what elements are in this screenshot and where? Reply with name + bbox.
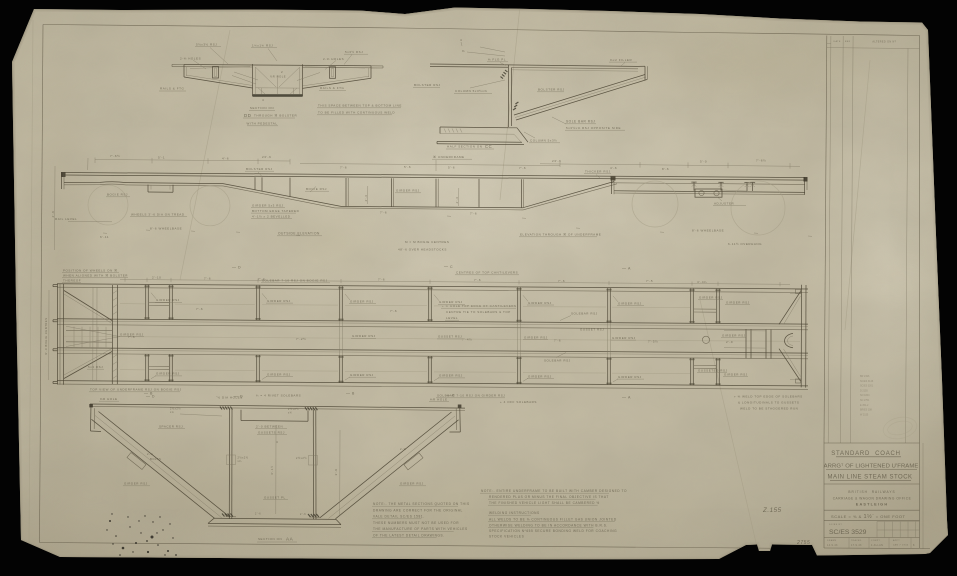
svg-text:8: 8 [913, 544, 915, 547]
svg-text:WELDING INSTRUCTIONS: WELDING INSTRUCTIONS [489, 511, 540, 515]
svg-text:9'-0 BOGIE CENTRES: 9'-0 BOGIE CENTRES [44, 317, 48, 354]
svg-text:BOLTS: BOLTS [150, 457, 161, 461]
svg-text:7'-6: 7'-6 [470, 212, 477, 216]
svg-text:C: C [450, 265, 453, 269]
svg-text:7'-6: 7'-6 [340, 166, 347, 170]
svg-text:GUSSET PL: GUSSET PL [264, 496, 286, 500]
svg-text:BOGIE RSJ: BOGIE RSJ [107, 193, 128, 197]
svg-text:B: B [352, 392, 355, 396]
svg-text:THESE NUMBERS MUST NOT BE USED: THESE NUMBERS MUST NOT BE USED FOR [373, 521, 459, 525]
svg-text:GIRDER RSJ: GIRDER RSJ [156, 298, 180, 302]
svg-text:COLUMN 5x3½: COLUMN 5x3½ [530, 139, 557, 143]
svg-text:5x3½x⅜ RSJ OPPOSITE SIDE: 5x3½x⅜ RSJ OPPOSITE SIDE [566, 126, 621, 130]
svg-text:GIRDER RSJ: GIRDER RSJ [528, 374, 552, 378]
svg-text:7'-6: 7'-6 [196, 307, 203, 311]
svg-text:LEVEL: LEVEL [446, 316, 458, 320]
svg-text:GIRDER RSJ: GIRDER RSJ [156, 372, 180, 376]
svg-text:48'-6 OVER HEADSTOCKS: 48'-6 OVER HEADSTOCKS [398, 248, 447, 252]
svg-text:A: A [628, 267, 631, 271]
svg-text:4'-1½: 4'-1½ [270, 465, 274, 475]
svg-text:SPACER RSJ: SPACER RSJ [159, 425, 183, 429]
svg-text:GIRDER RSJ: GIRDER RSJ [722, 334, 746, 338]
svg-text:OTHERWISE WELDING TO BE IN ACC: OTHERWISE WELDING TO BE IN ACCORDANCE WI… [489, 524, 608, 528]
svg-text:BOTTOM EDGE TAPERED: BOTTOM EDGE TAPERED [252, 209, 300, 213]
svg-text:⅜ FLG PL: ⅜ FLG PL [488, 58, 506, 62]
svg-text:GIRDER RSJ: GIRDER RSJ [267, 372, 291, 376]
svg-text:2-⅜ HOLES: 2-⅜ HOLES [180, 57, 201, 61]
svg-text:D 2155: D 2155 [860, 389, 868, 392]
svg-text:2'-9: 2'-9 [726, 340, 733, 344]
svg-text:4 ALLAN: 4 ALLAN [871, 544, 883, 547]
svg-text:DD: DD [244, 113, 251, 118]
svg-text:SO 1844: SO 1844 [860, 394, 870, 397]
svg-text:⅜R HOLE: ⅜R HOLE [100, 397, 118, 401]
svg-text:2-⅜ HOLES: 2-⅜ HOLES [323, 57, 344, 61]
svg-text:TO BE FILLED WITH CONTINUOUS W: TO BE FILLED WITH CONTINUOUS WELD [318, 111, 395, 115]
svg-text:VALE DETAIL SC/ES 1581.: VALE DETAIL SC/ES 1581. [373, 515, 425, 519]
svg-text:BR/ES 108: BR/ES 108 [860, 409, 872, 412]
svg-text:SC/ES 3529: SC/ES 3529 [829, 529, 867, 536]
svg-text:2'-0 BETWEEN: 2'-0 BETWEEN [256, 425, 283, 429]
svg-text:SCALE = ⅜ & 1½″ = ONE FOOT: SCALE = ⅜ & 1½″ = ONE FOOT [831, 513, 906, 520]
svg-text:7'-6: 7'-6 [474, 278, 481, 282]
svg-text:CARRIAGE & WAGON DRAWING OFFIC: CARRIAGE & WAGON DRAWING OFFICE [833, 496, 912, 500]
svg-text:ARRGT OF LIGHTENED U'FRAME: ARRGT OF LIGHTENED U'FRAME [824, 463, 919, 470]
svg-text:& LONGITUDINALS TO GUSSETS: & LONGITUDINALS TO GUSSETS [738, 401, 799, 405]
svg-text:GIRDER RSJ: GIRDER RSJ [524, 335, 548, 339]
svg-text:4'-1½ x 2 BEVELLED: 4'-1½ x 2 BEVELLED [252, 215, 291, 219]
svg-text:2½x2½: 2½x2½ [296, 456, 307, 460]
svg-text:BOLSTER RSJ: BOLSTER RSJ [538, 88, 565, 92]
svg-text:5'-6: 5'-6 [448, 165, 455, 169]
svg-text:THROUGH ⌘ BOLSTER: THROUGH ⌘ BOLSTER [254, 114, 297, 118]
svg-text:RAIL LEVEL: RAIL LEVEL [55, 217, 77, 221]
svg-text:7'-6½: 7'-6½ [756, 159, 766, 163]
svg-text:SC 2751: SC 2751 [860, 399, 870, 402]
svg-text:GIRDER 5x3 RSJ: GIRDER 5x3 RSJ [252, 204, 284, 208]
svg-text:Z.155: Z.155 [762, 507, 782, 514]
svg-text:⅜R HOLE: ⅜R HOLE [430, 398, 448, 402]
svg-text:COMP?: COMP? [871, 540, 881, 542]
svg-text:7'-6: 7'-6 [390, 309, 397, 313]
svg-text:5½x3½ RSJ: 5½x3½ RSJ [196, 43, 217, 47]
svg-text:A: A [628, 396, 631, 400]
svg-text:½R HOLE: ½R HOLE [270, 75, 286, 79]
svg-text:5x3½ RSJ: 5x3½ RSJ [345, 50, 363, 54]
svg-text:APP?: APP? [893, 539, 900, 542]
svg-text:EASTLEIGH: EASTLEIGH [856, 503, 889, 507]
svg-text:2½x2½: 2½x2½ [170, 407, 181, 411]
svg-text:DRAWN: DRAWN [827, 539, 837, 542]
svg-text:GIRDER RSJ: GIRDER RSJ [618, 301, 642, 305]
svg-text:2½x2½: 2½x2½ [238, 456, 249, 460]
svg-text:GIRDER RSJ: GIRDER RSJ [400, 482, 424, 486]
svg-text:GUSSETS RSJ: GUSSETS RSJ [258, 431, 285, 435]
svg-text:7'-6: 7'-6 [558, 279, 565, 283]
svg-text:2-⅜: 2-⅜ [400, 447, 406, 451]
svg-text:7'-6½: 7'-6½ [110, 154, 120, 158]
svg-text:AA: AA [286, 537, 294, 542]
svg-text:NOTE:- THE METAL SECTIONS QUOT: NOTE:- THE METAL SECTIONS QUOTED ON THIS [373, 502, 470, 506]
svg-text:STOCK VEHICLES: STOCK VEHICLES [489, 535, 524, 539]
svg-text:RAILS & FTG: RAILS & FTG [320, 86, 345, 90]
svg-text:TRACED: TRACED [851, 539, 862, 542]
svg-text:DRAWING ARE CORRECT FOR THE OR: DRAWING ARE CORRECT FOR THE ORIGINAL [373, 508, 463, 512]
svg-text:BRITISH RAILWAYS: BRITISH RAILWAYS [848, 490, 895, 494]
svg-text:W 2155: W 2155 [860, 413, 869, 416]
svg-text:GIRDER RSJ: GIRDER RSJ [439, 374, 463, 378]
svg-text:SC/ES 3146: SC/ES 3146 [860, 380, 874, 383]
svg-text:RENDERED PLUS OR MINUS THE FIN: RENDERED PLUS OR MINUS THE FINAL OBJECTI… [489, 495, 609, 499]
svg-text:SECTION ON: SECTION ON [250, 106, 274, 110]
svg-text:SC/ES 3201: SC/ES 3201 [860, 385, 874, 388]
svg-text:7'-6: 7'-6 [519, 166, 526, 170]
svg-text:WELD TO BE STAGGERED RUN: WELD TO BE STAGGERED RUN [740, 407, 798, 411]
svg-text:8'-6 WHEELBASE: 8'-6 WHEELBASE [150, 227, 182, 231]
svg-text:7'-2½: 7'-2½ [296, 337, 306, 341]
svg-text:RAILS & FTG: RAILS & FTG [160, 87, 185, 91]
svg-text:x¼: x¼ [288, 411, 293, 414]
svg-text:⌘ UNDERFRAME: ⌘ UNDERFRAME [433, 155, 465, 159]
svg-text:2'-10: 2'-10 [152, 276, 161, 280]
svg-text:GIRDER RSJ: GIRDER RSJ [618, 375, 642, 379]
svg-text:4: 4 [262, 98, 264, 102]
svg-text:4: 4 [460, 38, 462, 42]
svg-text:GIRDER RSJ: GIRDER RSJ [612, 336, 636, 340]
svg-text:3'-9: 3'-9 [334, 469, 338, 476]
svg-text:+ 4 OFF SOLEBARS: + 4 OFF SOLEBARS [500, 400, 537, 404]
svg-text:STANDARD COACH: STANDARD COACH [831, 451, 901, 457]
svg-text:REF: REF [845, 41, 851, 43]
svg-text:ALL WELDS TO BE ⅜ CONTINUOUS F: ALL WELDS TO BE ⅜ CONTINUOUS FILLET GAS … [489, 518, 617, 522]
svg-text:5'-0: 5'-0 [700, 160, 707, 164]
svg-text:BOLSTER RSJ: BOLSTER RSJ [414, 83, 441, 87]
svg-text:GIRDER RSJ: GIRDER RSJ [267, 299, 291, 303]
svg-text:23'-6: 23'-6 [262, 155, 271, 159]
svg-text:7'-6: 7'-6 [128, 335, 135, 339]
svg-text:M = M BOGIE CENTRES: M = M BOGIE CENTRES [405, 240, 449, 244]
svg-text:BOGIE RSJ: BOGIE RSJ [306, 187, 327, 191]
svg-text:14.9.43: 14.9.43 [827, 544, 838, 547]
svg-text:SOLEBAR RSJ: SOLEBAR RSJ [544, 359, 571, 363]
svg-text:GIRDER RSJ: GIRDER RSJ [726, 301, 750, 305]
svg-text:7'-6: 7'-6 [554, 339, 561, 343]
svg-text:DATE: DATE [834, 40, 841, 43]
svg-text:GIRDER RSJ: GIRDER RSJ [352, 334, 376, 338]
svg-text:7'-6: 7'-6 [204, 276, 211, 280]
svg-text:GIRDER RSJ: GIRDER RSJ [350, 300, 374, 304]
svg-text:7'-5½: 7'-5½ [648, 340, 658, 344]
svg-text:D: D [238, 266, 241, 270]
svg-text:WHEELS 3'-6 DIA ON TREAD: WHEELS 3'-6 DIA ON TREAD [131, 213, 185, 217]
svg-text:D: D [152, 395, 155, 399]
svg-text:POSITION OF WHEELS ON ⌘: POSITION OF WHEELS ON ⌘ [63, 269, 118, 273]
svg-text:GIRDER RSJ: GIRDER RSJ [124, 482, 148, 486]
svg-text:2'-6: 2'-6 [255, 513, 261, 516]
svg-text:6-11½ OVERHANG: 6-11½ OVERHANG [728, 242, 762, 246]
svg-text:5x3 RSJ: 5x3 RSJ [88, 365, 103, 369]
svg-text:OF THE LATEST DETAIL DRAWINGS.: OF THE LATEST DETAIL DRAWINGS. [373, 534, 445, 538]
svg-text:GIRDER RSJ: GIRDER RSJ [724, 373, 748, 377]
svg-text:WHEN ALIGNED WITH ⌘ BOLSTER: WHEN ALIGNED WITH ⌘ BOLSTER [63, 274, 128, 278]
svg-text:4'-6: 4'-6 [222, 157, 229, 161]
svg-text:5'-6: 5'-6 [404, 165, 411, 169]
svg-text:8'-6 WHEELBASE: 8'-6 WHEELBASE [692, 229, 724, 233]
svg-text:¾ = 4 RIVET SOLEBARS: ¾ = 4 RIVET SOLEBARS [256, 394, 301, 398]
svg-text:THEREOF: THEREOF [63, 279, 81, 283]
svg-text:7'-5: 7'-5 [646, 279, 653, 283]
svg-text:2: 2 [281, 70, 283, 74]
svg-text:SECTION ON: SECTION ON [258, 537, 282, 541]
svg-text:THIS SPACE BETWEEN TOP & BOTTO: THIS SPACE BETWEEN TOP & BOTTOM LINE [318, 104, 402, 108]
svg-text:5'-1: 5'-1 [158, 155, 165, 159]
svg-text:4'-6: 4'-6 [610, 166, 617, 170]
svg-text:BR 2196: BR 2196 [860, 375, 870, 378]
svg-text:6'-11: 6'-11 [100, 235, 109, 239]
svg-text:COLUMN 5x3½x⅜: COLUMN 5x3½x⅜ [455, 89, 487, 93]
svg-text:OUTSIDE ELEVATION: OUTSIDE ELEVATION [278, 232, 320, 236]
svg-text:1¾x1¾ RSJ: 1¾x1¾ RSJ [252, 44, 273, 48]
svg-text:SC/ES N?: SC/ES N? [829, 524, 843, 526]
svg-text:2½x2½: 2½x2½ [288, 407, 299, 411]
svg-text:WITH PEDESTAL: WITH PEDESTAL [246, 122, 277, 126]
svg-text:7'-6: 7'-6 [380, 211, 387, 215]
svg-text:⅜: ⅜ [462, 49, 465, 53]
svg-text:SPECIFICATION Nº655 SECURE BON: SPECIFICATION Nº655 SECURE BONDING WELD … [489, 529, 617, 533]
svg-text:ALTERED ON N?: ALTERED ON N? [872, 41, 896, 44]
svg-text:ELEVATION THROUGH ⌘ OF UNDERFR: ELEVATION THROUGH ⌘ OF UNDERFRAME [520, 233, 601, 237]
svg-text:BOLSTER RSJ: BOLSTER RSJ [246, 167, 273, 171]
svg-text:SOLE BAR RSJ: SOLE BAR RSJ [566, 120, 595, 124]
svg-text:ADJUSTER: ADJUSTER [714, 202, 735, 206]
svg-text:JAN 7 1944: JAN 7 1944 [893, 544, 909, 547]
svg-text:“½ DIA HOLES: “½ DIA HOLES [216, 396, 243, 400]
svg-text:CENTRES OF TOP CANTILEVERS: CENTRES OF TOP CANTILEVERS [456, 271, 518, 275]
svg-text:2-⅜: 2-⅜ [147, 452, 153, 456]
svg-text:8'-6: 8'-6 [662, 167, 669, 171]
svg-text:4'-4¼: 4'-4¼ [697, 280, 707, 284]
svg-text:2'-6: 2'-6 [51, 211, 55, 218]
svg-text:GIRDER RSJ: GIRDER RSJ [528, 301, 552, 305]
svg-text:SOLEBAR 7-10 RSJ ON BOGIE RSJ: SOLEBAR 7-10 RSJ ON BOGIE RSJ [262, 279, 328, 283]
svg-text:CENTRE TIE TO SOLEBARS & TOP: CENTRE TIE TO SOLEBARS & TOP [446, 310, 511, 314]
svg-text:MAIN LINE STEAM STOCK: MAIN LINE STEAM STOCK [827, 474, 912, 480]
svg-text:E 451-2: E 451-2 [860, 404, 869, 407]
svg-text:THICKER RSJ: THICKER RSJ [585, 170, 611, 174]
svg-text:17.9.43: 17.9.43 [851, 544, 862, 547]
svg-text:SOLEBAR RSJ: SOLEBAR RSJ [571, 312, 598, 316]
svg-text:GIRDER RSJ: GIRDER RSJ [699, 296, 723, 300]
svg-text:GIRDER RSJ: GIRDER RSJ [350, 373, 374, 377]
svg-text:7'-4½: 7'-4½ [462, 338, 472, 342]
svg-text:NOTE:- ENTIRE UNDERFRAME TO BE: NOTE:- ENTIRE UNDERFRAME TO BE BUILT WIT… [481, 489, 627, 493]
svg-text:x¼: x¼ [238, 460, 243, 463]
svg-text:TOP VIEW OF UNDERFRAME RSJ ON: TOP VIEW OF UNDERFRAME RSJ ON BOGIE RSJ [90, 388, 182, 392]
svg-text:⅜x2 FILLER: ⅜x2 FILLER [610, 58, 632, 62]
svg-text:GUSSET RSJ: GUSSET RSJ [580, 328, 604, 332]
svg-text:x¼: x¼ [170, 411, 175, 414]
svg-text:2'-6: 2'-6 [300, 513, 306, 516]
svg-text:THE MANUFACTURE OF PARTS WITH: THE MANUFACTURE OF PARTS WITH VEHICLES [373, 527, 468, 531]
svg-text:4: 4 [276, 440, 278, 444]
svg-text:HALF SECTION ON: HALF SECTION ON [447, 145, 482, 149]
svg-text:+ ⅜ WELD TOP EDGE OF SOLEBARS: + ⅜ WELD TOP EDGE OF SOLEBARS [734, 395, 803, 399]
svg-text:CC: CC [485, 144, 492, 149]
svg-text:THE FINISHED VEHICLE LIGHT SHA: THE FINISHED VEHICLE LIGHT SHALL BE CAMB… [489, 501, 600, 505]
svg-text:GIRDER RSJ: GIRDER RSJ [396, 189, 420, 193]
svg-text:GUSSET RSJ: GUSSET RSJ [438, 335, 462, 339]
svg-text:7'-6: 7'-6 [378, 278, 385, 282]
